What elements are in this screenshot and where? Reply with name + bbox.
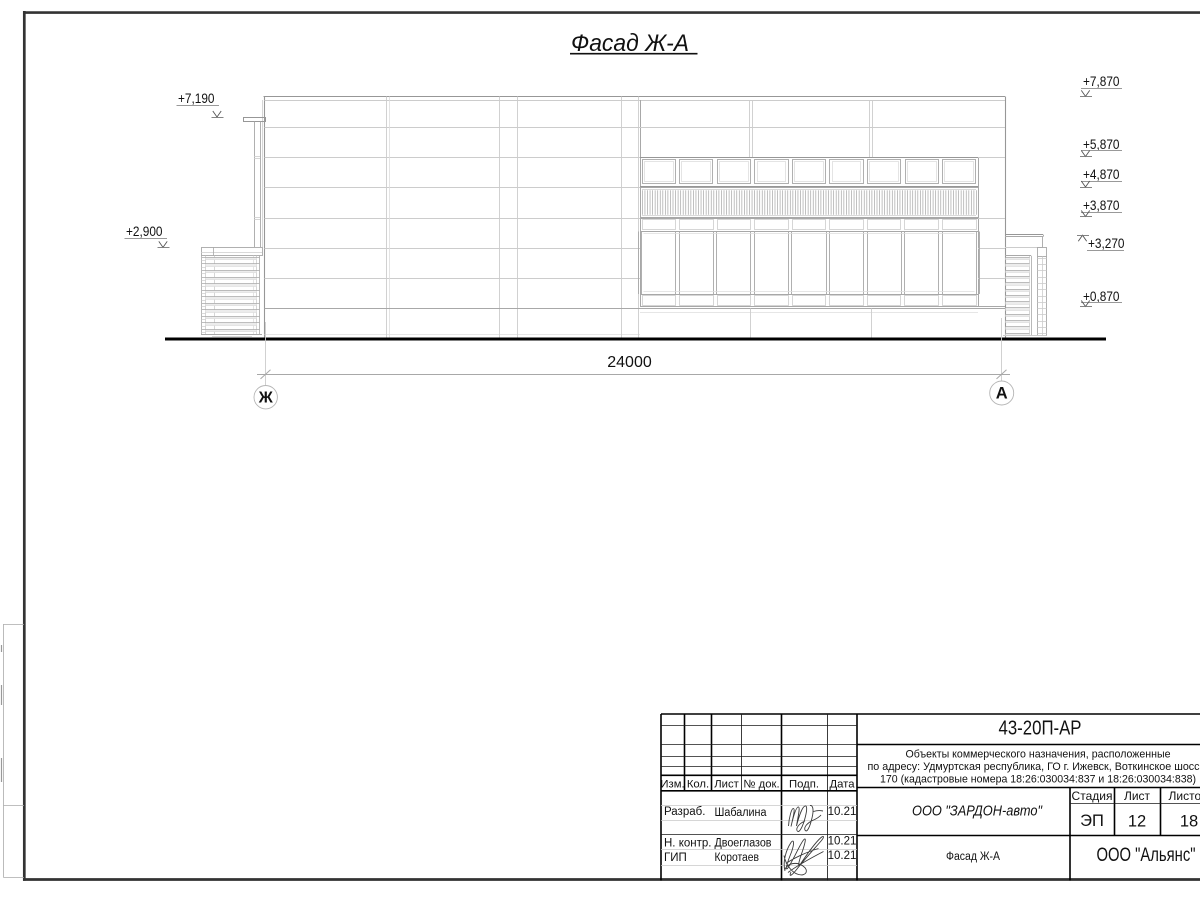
svg-text:№ док.: № док. bbox=[743, 778, 779, 790]
svg-text:Изм.: Изм. bbox=[660, 778, 684, 790]
svg-text:ГИП: ГИП bbox=[664, 852, 687, 864]
svg-text:Шабалина: Шабалина bbox=[715, 807, 768, 819]
svg-text:Разраб.: Разраб. bbox=[664, 806, 705, 818]
svg-text:Коротаев: Коротаев bbox=[715, 852, 760, 864]
svg-text:+3,870: +3,870 bbox=[1083, 197, 1120, 213]
svg-text:10.21: 10.21 bbox=[828, 850, 857, 862]
svg-text:Н. контр.: Н. контр. bbox=[664, 838, 711, 850]
svg-text:ООО "Альянс": ООО "Альянс" bbox=[1097, 845, 1196, 866]
svg-text:Лист: Лист bbox=[714, 778, 739, 790]
svg-text:10.21: 10.21 bbox=[828, 806, 857, 818]
svg-text:Дата: Дата bbox=[829, 778, 855, 790]
svg-text:170 (кадастровые номера 18:26:: 170 (кадастровые номера 18:26:030034:837… bbox=[880, 773, 1196, 785]
svg-text:+5,870: +5,870 bbox=[1083, 136, 1120, 152]
svg-text:ООО "ЗАРДОН-авто": ООО "ЗАРДОН-авто" bbox=[912, 804, 1043, 820]
svg-text:+0,870: +0,870 bbox=[1083, 288, 1120, 304]
svg-text:24000: 24000 bbox=[607, 354, 652, 371]
svg-text:Ж: Ж bbox=[258, 389, 274, 406]
svg-text:по адресу: Удмуртская республи: по адресу: Удмуртская республика, ГО г. … bbox=[868, 761, 1200, 773]
svg-text:18: 18 bbox=[1180, 813, 1198, 831]
svg-text:12: 12 bbox=[1128, 813, 1146, 831]
svg-text:10.21: 10.21 bbox=[828, 836, 857, 848]
svg-text:Листов: Листов bbox=[1169, 789, 1200, 803]
svg-text:ЭП: ЭП bbox=[1080, 812, 1104, 830]
svg-text:+3,270: +3,270 bbox=[1088, 235, 1125, 251]
svg-text:Фасад Ж-А: Фасад Ж-А bbox=[946, 851, 1000, 863]
svg-text:+2,900: +2,900 bbox=[126, 223, 163, 239]
svg-text:+7,190: +7,190 bbox=[178, 90, 215, 106]
svg-text:Кол.: Кол. bbox=[687, 778, 709, 790]
svg-text:+7,870: +7,870 bbox=[1083, 73, 1120, 89]
svg-text:Лист: Лист bbox=[1124, 789, 1151, 803]
svg-text:43-20П-АР: 43-20П-АР bbox=[999, 718, 1082, 740]
svg-text:А: А bbox=[996, 385, 1008, 403]
svg-text:Двоеглазов: Двоеглазов bbox=[715, 838, 772, 850]
svg-text:Объекты коммерческого назначен: Объекты коммерческого назначения, распол… bbox=[906, 749, 1171, 761]
svg-text:+4,870: +4,870 bbox=[1083, 166, 1120, 182]
svg-text:Подп.: Подп. bbox=[789, 778, 819, 790]
svg-text:Стадия: Стадия bbox=[1072, 789, 1113, 803]
